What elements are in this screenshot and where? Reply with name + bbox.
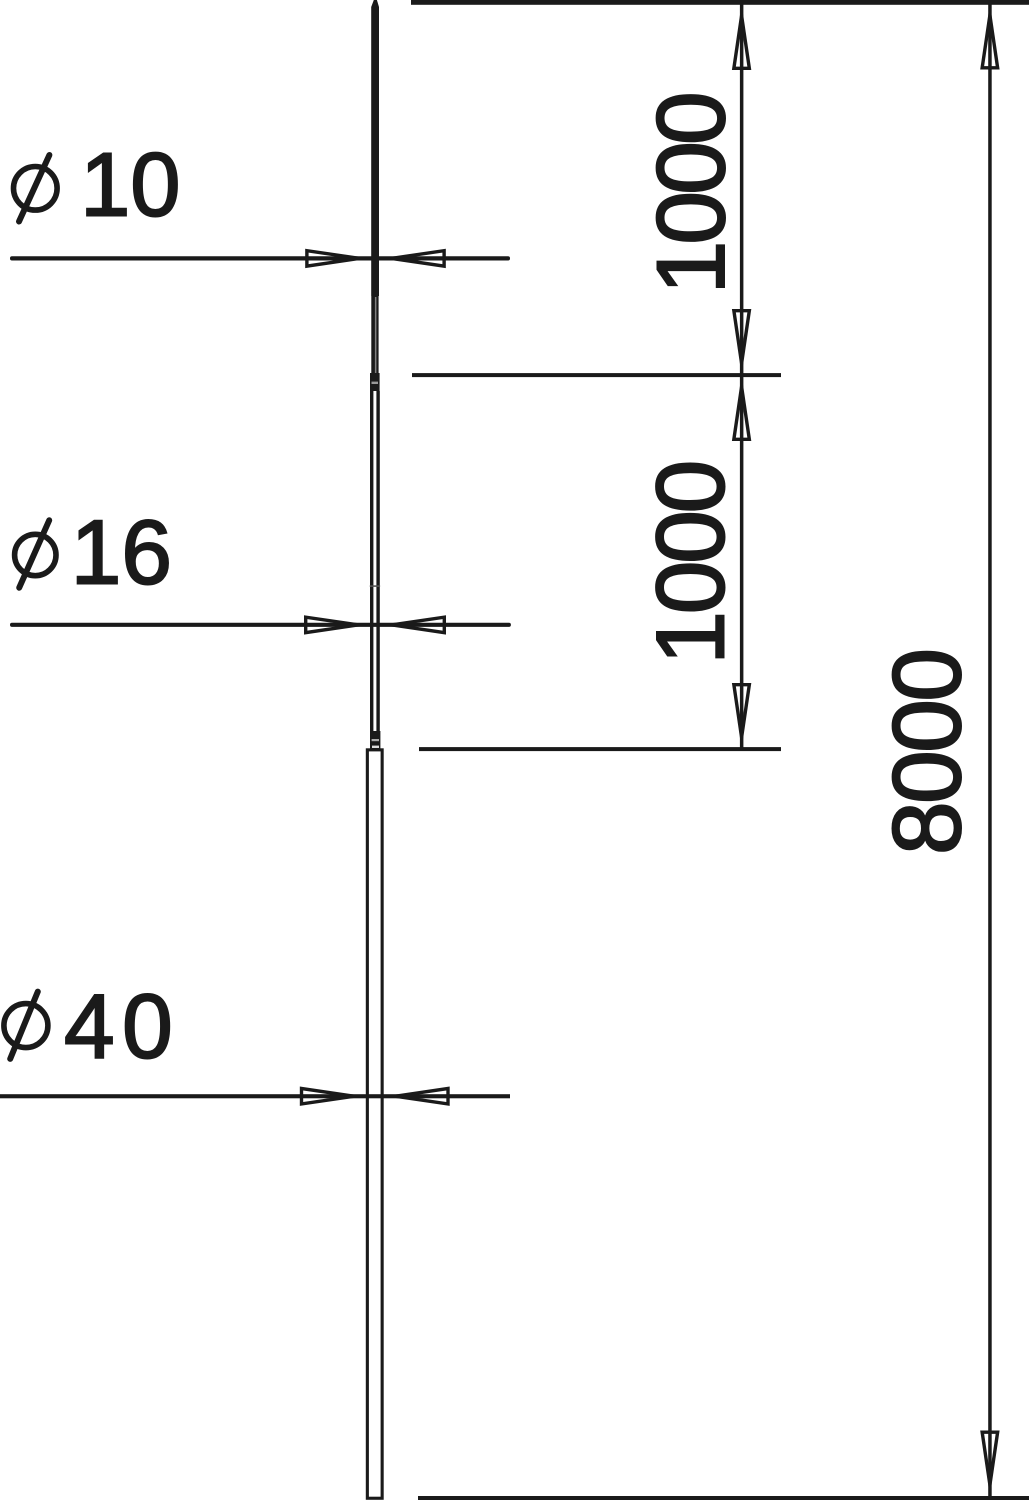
svg-text:1000: 1000	[638, 91, 745, 294]
svg-text:16: 16	[71, 503, 172, 604]
svg-text:8000: 8000	[874, 648, 981, 855]
svg-text:40: 40	[64, 977, 173, 1078]
svg-text:10: 10	[80, 136, 180, 236]
svg-text:1000: 1000	[638, 460, 745, 665]
